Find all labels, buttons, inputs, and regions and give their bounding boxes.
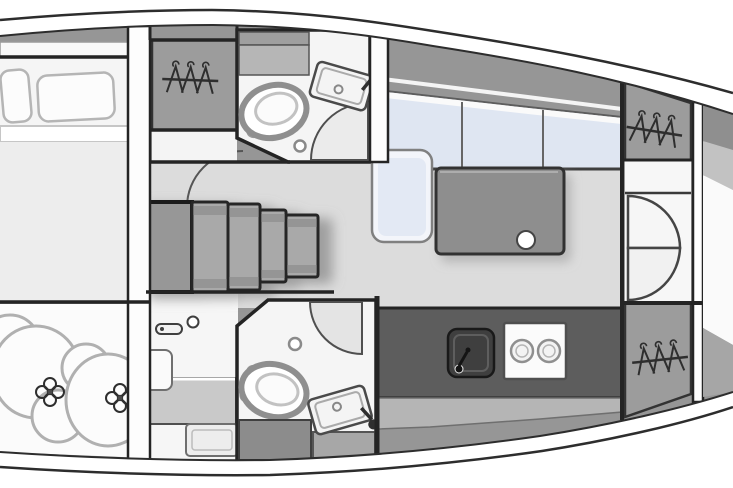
corridor-drawer: [186, 424, 238, 456]
pillow: [0, 69, 32, 123]
galley-sink: [448, 329, 494, 377]
step: [192, 202, 228, 292]
burner-icon: [511, 340, 533, 362]
bulkhead-head-salon: [370, 26, 388, 162]
bow-section: [625, 82, 733, 417]
flush-knob: [289, 338, 301, 350]
galley: [378, 308, 622, 429]
cup-holder-icon: [517, 231, 535, 249]
main-bulkhead-left: [128, 26, 150, 462]
bed-board: [0, 126, 130, 142]
pillow: [37, 72, 115, 122]
floor-plan-svg: [0, 0, 733, 488]
bathroom-forward: [235, 30, 381, 162]
overhead-cabinet: [239, 45, 309, 75]
bath-cabinet: [239, 420, 311, 460]
flush-knob: [295, 141, 306, 152]
bathroom-aft: [235, 300, 379, 460]
galley-counter: [378, 308, 622, 398]
burner-icon: [538, 340, 560, 362]
bow-bulkhead: [693, 102, 703, 402]
companionway-steps: [138, 202, 318, 292]
bow-floor: [703, 175, 733, 345]
salon-table: [436, 168, 564, 254]
boat-floor-plan: [0, 0, 733, 488]
overhead-cabinet: [239, 32, 309, 45]
hanging-locker-left: [152, 40, 237, 162]
bed-mattress: [0, 142, 128, 302]
stove-two-burners: [504, 323, 566, 379]
